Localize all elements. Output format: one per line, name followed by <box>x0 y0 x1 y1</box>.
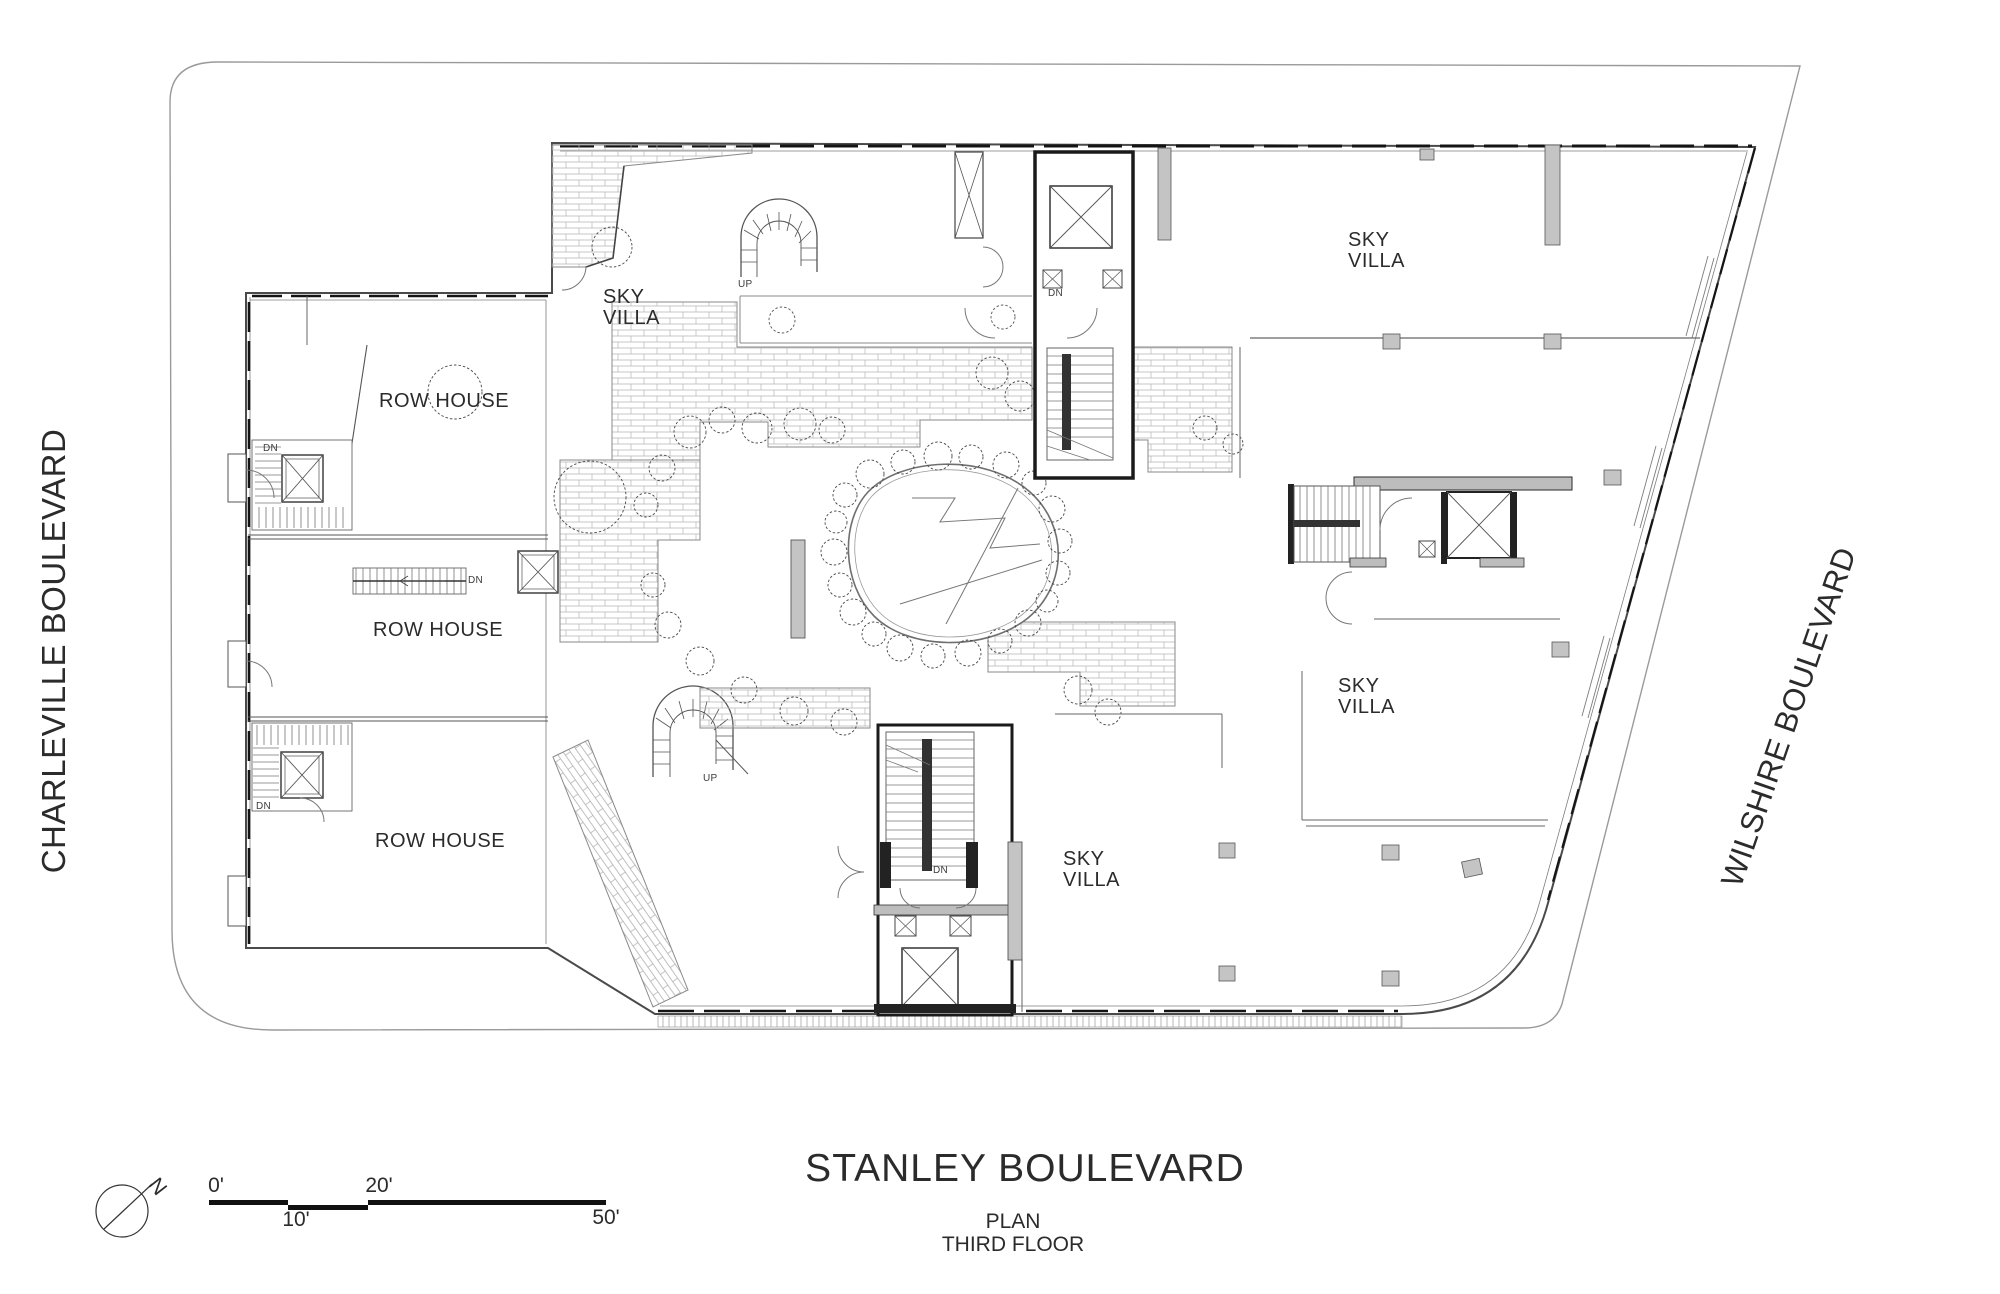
sky-villa-line1: SKY <box>1338 676 1395 697</box>
floor-plan-drawing <box>0 0 2000 1294</box>
stair-dn-label-core-bottom: DN <box>933 865 948 876</box>
unit-label-row-house-1: ROW HOUSE <box>379 391 509 412</box>
drawing-title-line2: THIRD FLOOR <box>942 1233 1084 1256</box>
sky-villa-line2: VILLA <box>1063 870 1120 891</box>
north-arrow <box>96 1184 152 1237</box>
scale-tick-20: 20' <box>365 1174 392 1198</box>
scale-bar <box>209 1200 606 1210</box>
street-label-charleville: CHARLEVILLE BOULEVARD <box>35 429 73 874</box>
unit-label-row-house-2: ROW HOUSE <box>373 620 503 641</box>
drawing-title: PLAN THIRD FLOOR <box>942 1210 1084 1256</box>
street-label-stanley: STANLEY BOULEVARD <box>805 1147 1245 1191</box>
stair-up-label-bottom: UP <box>703 773 718 784</box>
courtyard-pond <box>848 464 1058 642</box>
scale-tick-50: 50' <box>592 1206 619 1230</box>
sky-villa-line2: VILLA <box>603 308 660 329</box>
stair-dn-label-rh3: DN <box>256 801 271 812</box>
drawing-title-line1: PLAN <box>942 1210 1084 1233</box>
scale-tick-10: 10' <box>282 1208 309 1232</box>
sky-villa-line1: SKY <box>603 287 660 308</box>
floor-plan-sheet: CHARLEVILLE BOULEVARD WILSHIRE BOULEVARD… <box>0 0 2000 1294</box>
stair-dn-label-rh1: DN <box>263 443 278 454</box>
stair-dn-label-core-top: DN <box>1048 288 1063 299</box>
stair-up-label-top: UP <box>738 279 753 290</box>
unit-label-sky-villa-3: SKY VILLA <box>1338 676 1395 718</box>
sky-villa-line2: VILLA <box>1348 251 1405 272</box>
stair-dn-label-rh2: DN <box>468 575 483 586</box>
sky-villa-line2: VILLA <box>1338 697 1395 718</box>
unit-label-sky-villa-1: SKY VILLA <box>603 287 660 329</box>
scale-tick-0: 0' <box>208 1174 224 1198</box>
sky-villa-line1: SKY <box>1063 849 1120 870</box>
unit-label-sky-villa-4: SKY VILLA <box>1063 849 1120 891</box>
unit-label-sky-villa-2: SKY VILLA <box>1348 230 1405 272</box>
sky-villa-line1: SKY <box>1348 230 1405 251</box>
unit-label-row-house-3: ROW HOUSE <box>375 831 505 852</box>
